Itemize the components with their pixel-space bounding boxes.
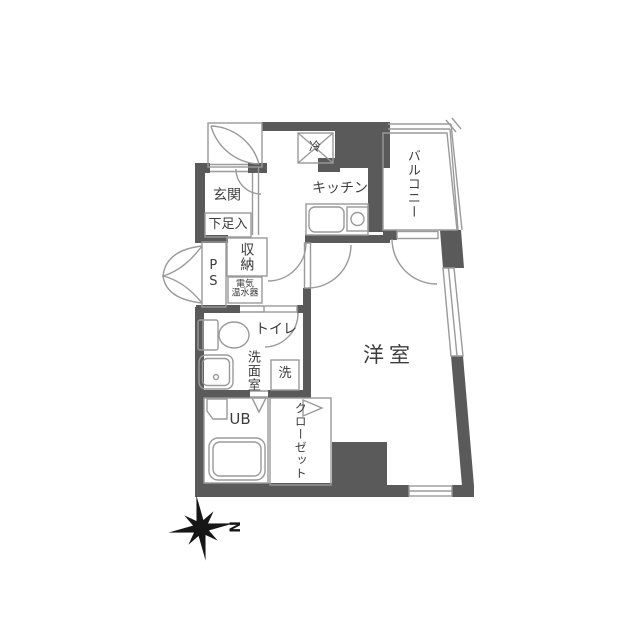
ub-door-marker bbox=[252, 398, 266, 412]
label-western-room: 洋室 bbox=[363, 344, 415, 366]
wall-west-room-top bbox=[305, 235, 390, 243]
wall-bottom-right bbox=[387, 485, 409, 497]
label-kitchen: キッチン bbox=[312, 182, 368, 197]
label-toilet: トイレ bbox=[255, 323, 297, 338]
entrance-porch bbox=[208, 123, 262, 167]
entrance-door-arc-1 bbox=[211, 126, 259, 164]
wall-right-slanted bbox=[451, 356, 474, 486]
balcony-door-leaf bbox=[397, 232, 438, 239]
door-markers bbox=[252, 398, 322, 416]
kitchen-stove bbox=[347, 207, 368, 231]
balcony-door-arc bbox=[392, 239, 437, 284]
washbasin-inner bbox=[203, 359, 230, 386]
bathtub-inner bbox=[213, 442, 261, 476]
bathtub-outer bbox=[209, 438, 265, 480]
floorplan-drawing bbox=[0, 0, 640, 640]
wall-balcony-left bbox=[368, 168, 383, 232]
wall-washroom-bottom-left bbox=[196, 390, 250, 398]
label-shoe-box: 下足入 bbox=[208, 218, 247, 232]
floorplan-canvas: 玄関 下足入 収納 PS 電気温水器 キッチン 冷 バルコニー 洋室 トイレ 洗… bbox=[0, 0, 640, 640]
toilet-bowl bbox=[219, 322, 249, 348]
west-room-door-arc bbox=[308, 245, 351, 288]
label-water-heater-line2: 温水器 bbox=[231, 289, 258, 299]
wall-west-room-left bbox=[303, 288, 311, 398]
bath-sink bbox=[207, 399, 227, 419]
label-pipe-space: PS bbox=[206, 258, 220, 290]
wall-left-upper bbox=[195, 163, 205, 243]
ps-door-petal-lower bbox=[163, 276, 202, 303]
label-refrigerator: 冷 bbox=[309, 141, 321, 154]
label-storage: 収納 bbox=[239, 242, 254, 272]
ps-door-petal-upper bbox=[163, 246, 202, 276]
wall-corner-se bbox=[452, 485, 474, 497]
label-water-heater: 電気温水器 bbox=[231, 281, 258, 300]
label-balcony: バルコニー bbox=[405, 149, 419, 219]
label-washer: 洗 bbox=[278, 367, 291, 381]
kitchen-burner bbox=[351, 213, 364, 226]
toilet-door-leaf bbox=[264, 306, 297, 312]
entrance-door-arc-2 bbox=[211, 126, 259, 164]
walls bbox=[195, 122, 474, 497]
wall-block-sw bbox=[332, 442, 387, 497]
hall-door-arc bbox=[268, 243, 306, 281]
wall-washroom-bottom-right bbox=[268, 390, 311, 398]
wall-block-fridge bbox=[335, 122, 390, 168]
label-washroom: 洗面室 bbox=[245, 350, 259, 392]
balcony-corner-tick-2 bbox=[452, 118, 461, 129]
label-unit-bath: UB bbox=[229, 412, 250, 428]
label-entrance: 玄関 bbox=[213, 189, 241, 204]
washbasin-drain bbox=[214, 375, 219, 380]
compass-north-label: N bbox=[226, 521, 241, 533]
wall-corner-ne bbox=[440, 230, 464, 268]
kitchen-sink bbox=[309, 207, 344, 232]
label-closet: クローゼット bbox=[294, 402, 307, 480]
